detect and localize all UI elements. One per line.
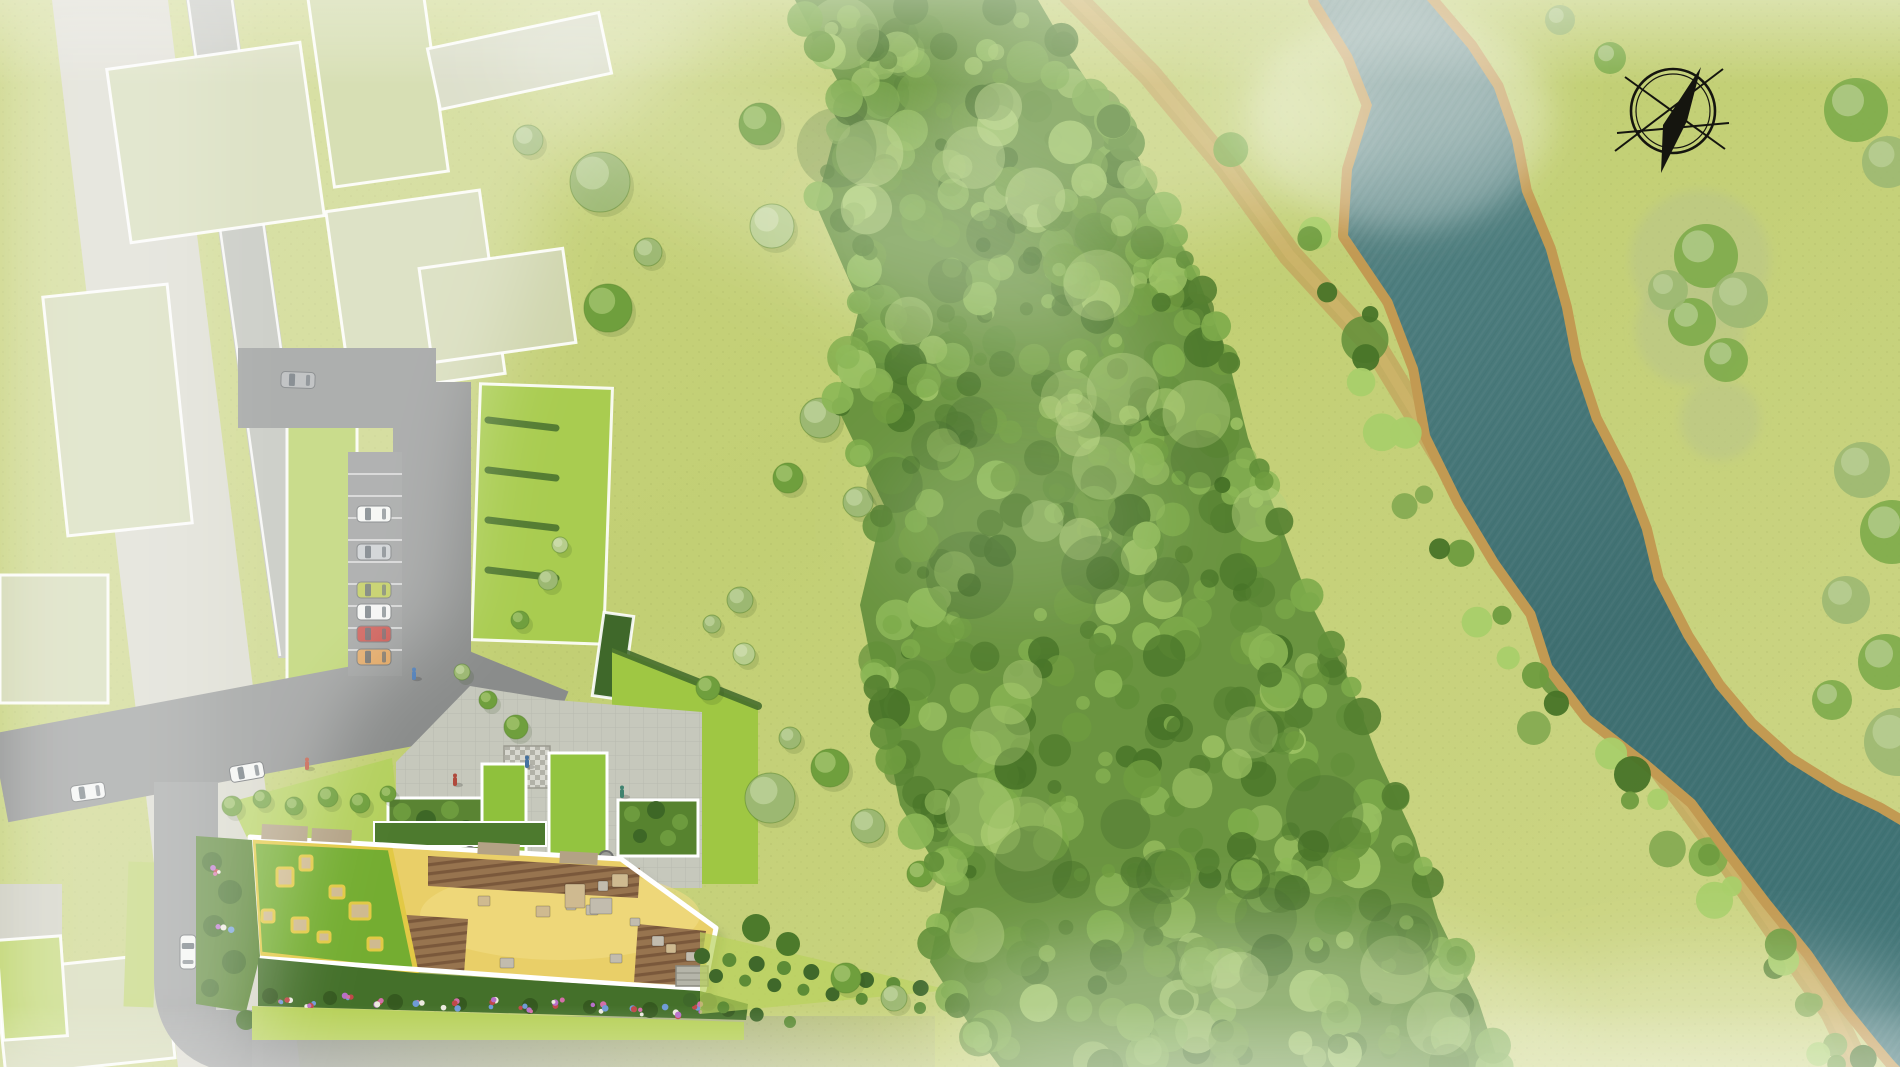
bed-bush-7 <box>647 801 665 819</box>
bank-vegetation <box>1544 691 1569 716</box>
garden-bush-1 <box>323 991 337 1005</box>
roof-equipment-12 <box>565 884 585 908</box>
canopy-shadow <box>1286 775 1364 853</box>
bank-vegetation <box>1621 791 1639 809</box>
right-bank-tree-hl <box>1719 278 1747 306</box>
forest-edge-tree <box>850 445 871 466</box>
forest-edge-tree <box>1344 698 1382 736</box>
roof-equipment-10 <box>500 958 514 968</box>
forest-edge-tree <box>1290 578 1323 611</box>
right-bank-shrubs-2 <box>1680 380 1760 460</box>
canopy-shadow <box>995 826 1073 904</box>
tree-highlight <box>637 240 652 255</box>
green-roof-skylight-2 <box>330 886 344 898</box>
bed-bush-8 <box>672 814 688 830</box>
tree-highlight <box>834 965 851 982</box>
person-head-0 <box>412 668 416 672</box>
tree-highlight <box>705 616 715 626</box>
forest-edge-tree <box>924 852 944 872</box>
bank-vegetation <box>1362 306 1378 322</box>
entrance-canopy-north-3 <box>559 851 598 865</box>
tree-highlight <box>730 589 744 603</box>
canopy-blob <box>1123 760 1161 798</box>
boundary-bush-1-0 <box>709 969 723 983</box>
site-plan-stage <box>0 0 1900 1067</box>
canopy-shadow <box>1101 799 1151 849</box>
tree-highlight <box>781 729 793 741</box>
boundary-bush-2-0 <box>683 993 697 1007</box>
right-bank-tree-hl <box>1841 448 1869 476</box>
right-bank-tree-hl <box>1869 141 1895 167</box>
person-0 <box>412 671 416 680</box>
canopy-blob <box>1047 780 1061 794</box>
canopy-blob <box>1058 920 1073 935</box>
bank-vegetation <box>1522 662 1549 689</box>
canopy-blob <box>1172 768 1212 808</box>
canopy-blob <box>1076 696 1090 710</box>
roof-equipment-1 <box>598 881 608 891</box>
forest-edge-tree <box>1341 677 1361 697</box>
tree-highlight <box>513 612 523 622</box>
canopy-blob <box>1334 895 1356 917</box>
roof-equipment-0 <box>612 874 628 887</box>
boundary-bush-1-1 <box>739 975 751 987</box>
canopy-blob <box>1020 919 1049 948</box>
right-bank-tree-hl <box>1865 640 1893 668</box>
bank-vegetation <box>1347 368 1376 397</box>
canopy-blob <box>1231 859 1262 890</box>
bank-vegetation <box>1492 606 1511 625</box>
tree-highlight <box>698 678 711 691</box>
green-roof-skylight-4 <box>292 918 308 932</box>
bank-vegetation <box>1415 486 1433 504</box>
canopy-blob <box>883 615 902 634</box>
canopy-shadow <box>1144 557 1189 602</box>
green-roof-skylight-7 <box>368 938 382 950</box>
boundary-bush-0-4 <box>803 964 819 980</box>
canopy-blob <box>1182 598 1211 627</box>
bed-bush-6 <box>624 806 640 822</box>
bed-bush-10 <box>660 830 676 846</box>
tree-highlight <box>735 645 747 657</box>
canopy-blob <box>1074 868 1087 881</box>
roof-equipment-11 <box>610 954 622 963</box>
tree-highlight <box>481 692 491 702</box>
forest-edge-tree <box>822 382 854 414</box>
canopy-blob <box>1095 670 1123 698</box>
entrance-canopy-north-2 <box>477 842 520 856</box>
forest-edge-tree <box>870 718 902 750</box>
tree-highlight <box>382 787 391 796</box>
forest-edge-tree <box>1414 857 1433 876</box>
flower-dot <box>346 995 350 999</box>
bottom-edge-haze <box>0 1005 1900 1067</box>
bank-vegetation <box>1649 831 1686 868</box>
bank-vegetation <box>1462 607 1493 638</box>
forest-edge-tree <box>864 675 890 701</box>
canopy-light-cluster <box>1003 660 1042 699</box>
forest-edge-tree <box>835 345 859 369</box>
canopy-blob <box>1179 828 1204 853</box>
canopy-blob <box>1303 684 1327 708</box>
forest-edge-tree <box>898 813 934 849</box>
right-bank-tree-hl <box>1682 230 1714 262</box>
tree-highlight <box>804 401 826 423</box>
canopy-blob <box>1230 600 1262 632</box>
person-3 <box>620 789 624 798</box>
boundary-tree-0 <box>742 914 770 942</box>
boundary-bush-1-2 <box>767 978 781 992</box>
canopy-blob <box>1089 633 1111 655</box>
left-edge-wash <box>0 0 210 1067</box>
canopy-blob <box>1095 768 1110 783</box>
bank-vegetation <box>1447 540 1474 567</box>
top-edge-haze <box>0 0 1900 85</box>
canopy-blob <box>907 364 941 398</box>
tree-highlight <box>506 717 519 730</box>
canopy-light-cluster <box>945 777 1014 846</box>
forest-edge-tree <box>1382 782 1410 810</box>
bank-vegetation <box>1390 417 1422 449</box>
canopy-blob <box>1331 753 1355 777</box>
roof-equipment-9 <box>478 896 490 906</box>
canopy-blob <box>950 684 979 713</box>
canopy-light-cluster <box>949 908 1004 963</box>
roof-equipment-8 <box>630 918 640 926</box>
right-bank-tree-hl <box>1832 84 1864 116</box>
flower-dot <box>551 1000 555 1004</box>
tree-highlight <box>884 987 898 1001</box>
right-bank-tree-hl <box>1828 581 1852 605</box>
canopy-blob <box>1394 843 1415 864</box>
flower-dot <box>491 997 496 1002</box>
bank-vegetation <box>1698 844 1720 866</box>
bank-vegetation <box>1317 282 1337 302</box>
canopy-blob <box>1230 417 1243 430</box>
canopy-blob <box>1328 849 1360 881</box>
flower-dot <box>284 997 289 1002</box>
flower-dot <box>560 997 565 1002</box>
entrance-canopy-north-1 <box>311 828 352 843</box>
tree-highlight <box>554 538 563 547</box>
right-bank-tree-hl <box>1868 506 1900 538</box>
canopy-blob <box>1285 731 1304 750</box>
canopy-blob <box>950 617 972 639</box>
canopy-blob <box>1098 752 1113 767</box>
canopy-light-cluster <box>1226 706 1278 758</box>
boundary-bush-0-1 <box>722 953 736 967</box>
boundary-bush-0-8 <box>913 980 929 996</box>
tree-highlight <box>320 789 331 800</box>
canopy-blob <box>1039 734 1071 766</box>
canopy-shadow <box>1136 849 1191 904</box>
canopy-blob <box>1200 569 1218 587</box>
canopy-blob <box>1202 735 1225 758</box>
canopy-blob <box>1194 848 1219 873</box>
boundary-tree-1 <box>776 932 800 956</box>
tree-highlight <box>540 572 551 583</box>
canopy-blob <box>1102 864 1115 877</box>
roof-equipment-3 <box>536 906 550 917</box>
bank-vegetation <box>1517 711 1551 745</box>
right-bank-tree-hl <box>1710 342 1732 364</box>
bank-vegetation <box>1297 226 1322 251</box>
bank-vegetation <box>1429 538 1450 559</box>
person-head-3 <box>620 786 624 790</box>
canopy-blob <box>1219 553 1257 591</box>
tree-highlight <box>854 812 873 831</box>
tree-highlight <box>750 777 778 805</box>
bank-vegetation <box>1696 882 1733 919</box>
canopy-light-cluster <box>970 706 1030 766</box>
canopy-blob <box>1034 608 1047 621</box>
bed-bush-9 <box>633 829 647 843</box>
canopy-blob <box>1152 293 1171 312</box>
tree-highlight <box>846 489 863 506</box>
canopy-blob <box>946 872 969 895</box>
canopy-blob <box>1166 716 1193 743</box>
canopy-blob <box>970 642 999 671</box>
canopy-blob <box>1131 226 1164 259</box>
canopy-blob <box>872 392 904 424</box>
boundary-bush-0-3 <box>777 961 791 975</box>
flower-dot <box>279 1000 283 1004</box>
canopy-blob <box>1257 663 1282 688</box>
site-plan <box>0 0 1900 1067</box>
bed-bush-2 <box>441 801 459 819</box>
forest-edge-tree <box>1318 631 1345 658</box>
green-roof-skylight-6 <box>350 903 370 919</box>
canopy-blob <box>1143 634 1185 676</box>
green-roof-skylight-5 <box>318 932 330 942</box>
tree-highlight <box>589 288 615 314</box>
roof-equipment-13 <box>590 898 612 914</box>
haze-patch-3 <box>880 430 1160 610</box>
forest-edge-tree <box>1218 352 1240 374</box>
bank-vegetation <box>1497 646 1520 669</box>
boundary-bush-0-0 <box>694 948 710 964</box>
canopy-blob <box>1062 712 1092 742</box>
forest-edge-tree <box>1265 507 1293 535</box>
right-bank-tree-hl <box>1653 274 1673 294</box>
canopy-blob <box>918 702 947 731</box>
boundary-bush-0-2 <box>749 956 765 972</box>
bank-vegetation <box>1647 789 1668 810</box>
person-head-1 <box>453 774 457 778</box>
forest-edge-tree <box>1255 472 1274 491</box>
person-head-2 <box>525 756 529 760</box>
person-2 <box>525 759 529 768</box>
canopy-shadow <box>1171 430 1229 488</box>
person-1 <box>453 777 457 786</box>
roof-equipment-2 <box>652 936 664 946</box>
boundary-bush-1-3 <box>797 984 809 996</box>
tree-highlight <box>456 665 465 674</box>
tree-highlight <box>815 752 836 773</box>
forest-edge-tree <box>1201 311 1231 341</box>
canopy-blob <box>1161 688 1177 704</box>
right-bank-tree-hl <box>1817 684 1837 704</box>
canopy-blob <box>1227 832 1256 861</box>
bank-vegetation <box>1352 344 1379 371</box>
canopy-blob <box>901 639 920 658</box>
tree-highlight <box>776 465 793 482</box>
building-edge-bed <box>374 822 546 846</box>
bank-vegetation <box>1765 929 1797 961</box>
forest-edge-tree <box>917 927 950 960</box>
bank-vegetation <box>1392 493 1418 519</box>
tree-highlight <box>910 863 924 877</box>
roof-equipment-6 <box>666 944 676 953</box>
bank-vegetation <box>1614 756 1651 793</box>
lawn-panel-1 <box>549 753 607 869</box>
forest-edge-tree <box>1188 276 1217 305</box>
flower-dot <box>419 1000 425 1006</box>
tree-highlight <box>352 795 363 806</box>
